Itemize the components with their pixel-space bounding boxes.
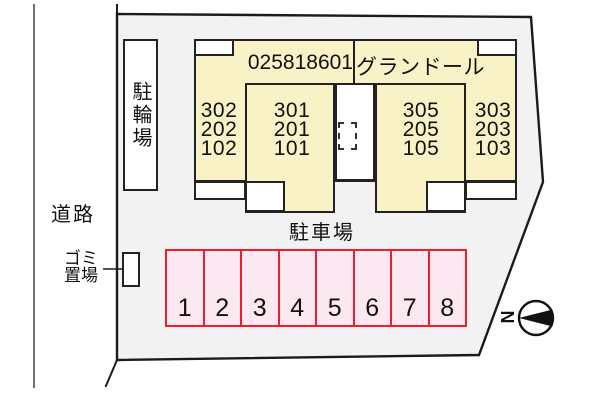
building-code: 025818601: [194, 51, 353, 81]
building-strip-bottom-right: [465, 181, 517, 200]
unit-number: 103: [465, 139, 521, 158]
road-label: 道路: [38, 198, 108, 227]
parking-stall: 1: [167, 251, 203, 325]
north-label: N: [498, 308, 516, 326]
unit-numbers-column-1: 302 202 102: [191, 101, 247, 158]
unit-numbers-column-2: 301 201 101: [264, 101, 320, 158]
parking-stalls-row: 1 2 3 4 5 6 7 8: [165, 249, 467, 327]
unit-number: 101: [264, 139, 320, 158]
bicycle-parking-label: 駐輪場: [126, 81, 155, 150]
parking-stall: 5: [315, 251, 353, 325]
parking-stall: 7: [390, 251, 428, 325]
parking-stall: 3: [240, 251, 278, 325]
parking-stall: 4: [278, 251, 316, 325]
garbage-enclosure: [122, 252, 140, 287]
unit-number: 102: [191, 139, 247, 158]
parking-stall: 6: [353, 251, 391, 325]
garbage-area-label: ゴミ 置場: [50, 250, 112, 284]
building-title: 025818601 グランドール: [194, 51, 517, 81]
parking-stall: 2: [203, 251, 241, 325]
garbage-label-line2: 置場: [50, 267, 112, 284]
building-strip-bottom-left: [194, 181, 246, 200]
building-title-divider: [353, 39, 355, 84]
parking-lot-label: 駐車場: [262, 216, 382, 245]
unit-numbers-column-3: 305 205 105: [393, 101, 449, 158]
unit-numbers-column-4: 303 203 103: [465, 101, 521, 158]
elevator-dashed-box: [338, 122, 357, 150]
garbage-label-line1: ゴミ: [50, 250, 112, 267]
parking-stall: 8: [428, 251, 466, 325]
building-notch-bottom-left: [245, 181, 285, 212]
unit-number: 105: [393, 139, 449, 158]
boundary-tick-bottom: [106, 360, 118, 387]
site-plan: 駐輪場 025818601 グランドール 302 202 102 301 201…: [0, 0, 600, 400]
building-name: グランドール: [353, 51, 485, 81]
bicycle-parking-area: 駐輪場: [123, 39, 158, 191]
building-notch-bottom-right: [426, 181, 466, 212]
